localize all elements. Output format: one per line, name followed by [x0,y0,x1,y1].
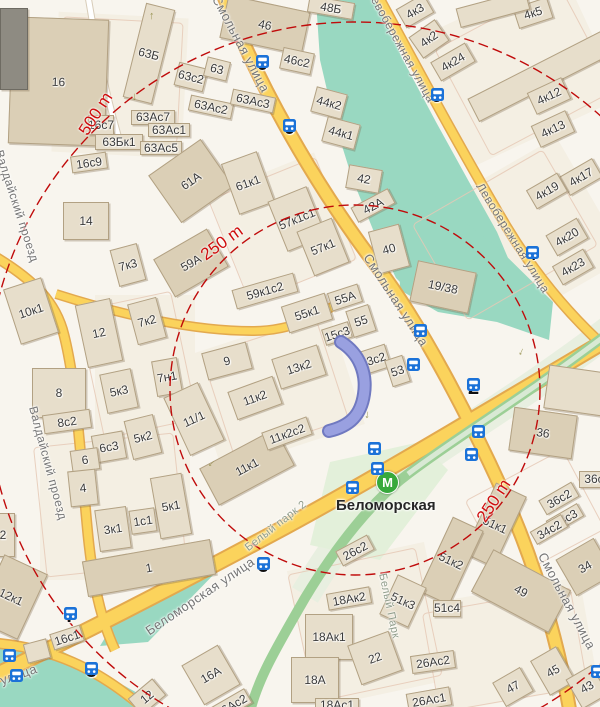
bus-stop-marker[interactable]: 1 [465,448,474,463]
bus-stop-marker[interactable]: 1 [414,324,423,339]
bus-stop-marker[interactable]: 6 [283,119,295,138]
bus-stop-marker[interactable]: 7 [64,607,76,626]
bus-stop-marker[interactable]: 1 [368,442,377,457]
bus-stop-marker[interactable]: 3 [257,557,269,576]
map-canvas[interactable]: 1663Б63с26316с763Ас763Ас163Бк163Ас563Ас2… [0,0,600,707]
metro-icon: М [382,476,393,489]
metro-station-label: Беломорская [336,497,436,514]
bus-stop-marker[interactable]: 2 [467,378,479,398]
markers-layer: М Беломорская 665411211111378 [0,0,600,707]
bus-stop-marker[interactable]: 1 [371,462,380,477]
bus-stop-marker[interactable]: 4 [526,246,536,263]
bus-stop-marker[interactable]: 6 [256,55,268,74]
bus-stop-marker[interactable]: 1 [472,425,481,440]
bus-stop-marker[interactable]: 5 [431,88,441,105]
bus-stop-marker[interactable]: 1 [407,358,416,373]
bus-stop-marker[interactable]: 8 [85,662,97,681]
bus-stop-marker[interactable]: 1 [346,481,355,496]
